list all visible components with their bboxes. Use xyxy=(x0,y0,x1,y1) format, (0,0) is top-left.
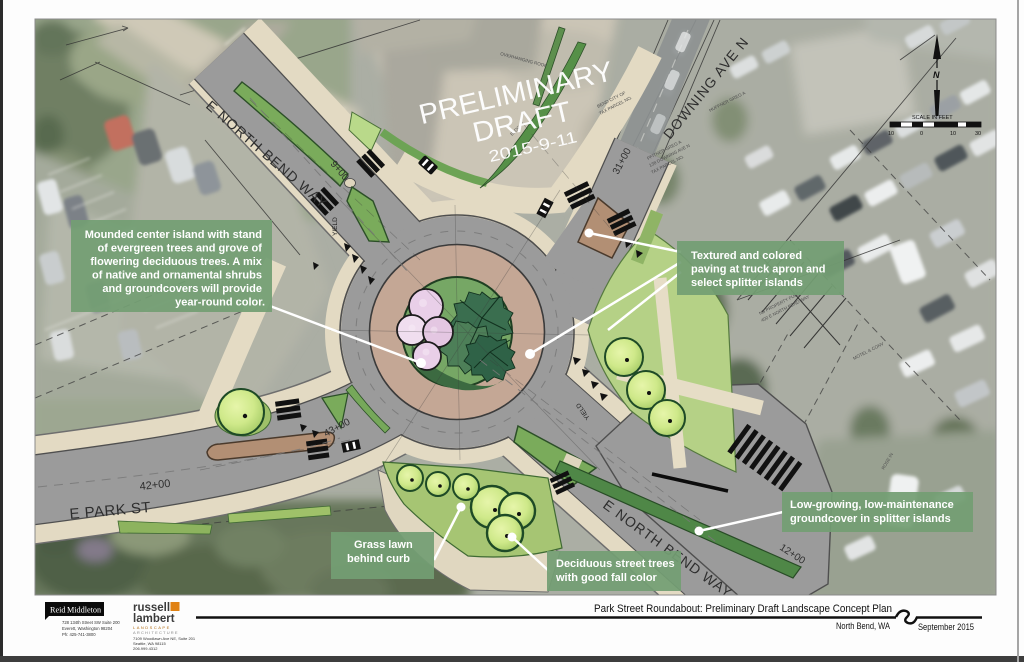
svg-text:Everett, Washington 98204: Everett, Washington 98204 xyxy=(62,626,113,631)
svg-text:September 2015: September 2015 xyxy=(918,622,974,632)
svg-text:728 134th Street SW Suite 200: 728 134th Street SW Suite 200 xyxy=(62,620,120,625)
svg-text:30: 30 xyxy=(975,131,981,137)
svg-text:SCALE IN FEET: SCALE IN FEET xyxy=(912,115,953,121)
svg-text:0: 0 xyxy=(920,131,923,137)
svg-text:YIELD: YIELD xyxy=(332,217,339,236)
svg-text:N: N xyxy=(933,70,940,80)
svg-text:ReidMiddleton: ReidMiddleton xyxy=(50,606,101,615)
svg-text:lambert: lambert xyxy=(133,613,175,625)
svg-text:10: 10 xyxy=(888,131,894,137)
svg-text:10: 10 xyxy=(950,131,956,137)
svg-text:206.999.4312: 206.999.4312 xyxy=(133,646,158,651)
svg-text:Park Street Roundabout: Preli: Park Street Roundabout: Preliminary Draf… xyxy=(594,603,892,615)
svg-text:North Bend, WA: North Bend, WA xyxy=(836,621,890,631)
svg-text:Ph: 425-741-3800: Ph: 425-741-3800 xyxy=(62,632,96,637)
svg-text:ARCHITECTURE: ARCHITECTURE xyxy=(133,630,179,635)
